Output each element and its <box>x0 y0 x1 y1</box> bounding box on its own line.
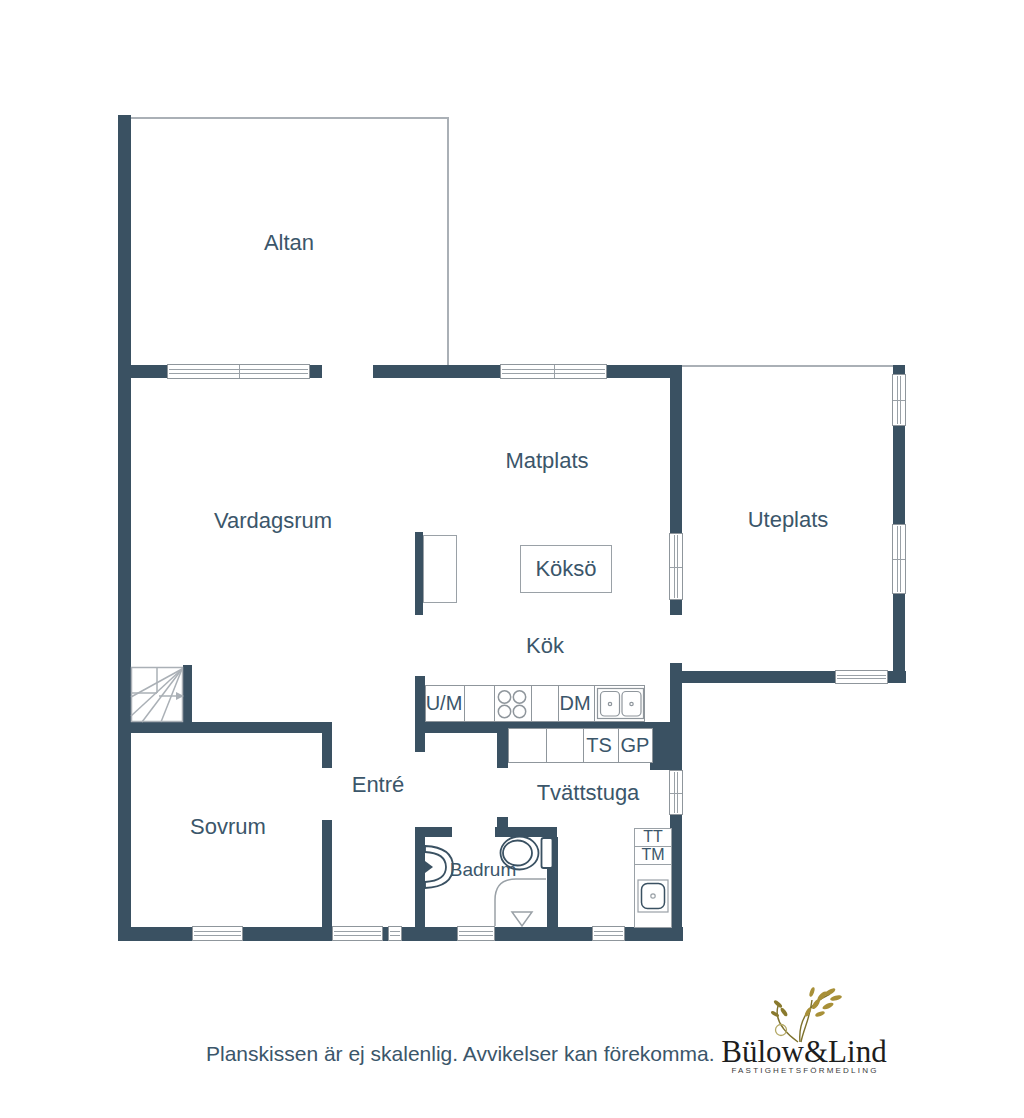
room-label-tvattstuga: Tvättstuga <box>537 782 640 804</box>
wall-matplats-top-left <box>373 365 500 378</box>
wall-kitchen-block-right <box>650 722 682 770</box>
room-label-vardagsrum: Vardagsrum <box>214 510 332 532</box>
appliance-label-tt: TT <box>643 829 663 845</box>
brand-subtitle: FASTIGHETSFÖRMEDLING <box>731 1066 878 1075</box>
window-uteplats-right-2 <box>892 524 906 594</box>
wall-matplats-uteplats-upper <box>670 365 682 533</box>
wall-bottom-5 <box>495 927 592 941</box>
wall-bottom-1 <box>118 927 192 941</box>
kitchen-tall-cabinet-back <box>415 532 423 615</box>
wall-bottom-6 <box>625 927 683 941</box>
window-entre-small <box>388 926 402 941</box>
kitchen-tall-cabinet <box>423 535 457 603</box>
logo-plant-leaves <box>804 987 843 1018</box>
wall-altan-bottom-left <box>118 365 167 378</box>
wall-uteplats-bottom-left <box>682 671 835 683</box>
uteplats-top-line <box>682 365 893 367</box>
wall-stairs-right <box>183 665 192 723</box>
altan-right-line <box>447 117 449 367</box>
wall-altan-bottom-right <box>310 365 322 378</box>
floor-plan-page: Altan Vardagsrum Matplats Uteplats Köksö… <box>0 0 1024 1118</box>
room-label-kokso: Köksö <box>535 558 596 580</box>
wall-exterior-left <box>118 115 131 941</box>
room-label-badrum: Badrum <box>450 860 517 879</box>
wall-uteplats-right-top-stub <box>893 365 905 374</box>
appliance-label-um: U/M <box>426 693 463 713</box>
wall-bottom-2 <box>243 927 332 941</box>
window-altan-door <box>167 364 310 379</box>
wall-matplats-uteplats-stub <box>670 600 682 615</box>
wall-badrum-right <box>547 837 558 927</box>
room-label-sovrum: Sovrum <box>190 816 266 838</box>
stairs-icon <box>131 667 184 722</box>
room-label-matplats: Matplats <box>505 450 588 472</box>
window-tvattstuga-right <box>669 770 683 815</box>
wall-sovrum-top <box>118 722 330 733</box>
window-matplats-top <box>500 364 607 379</box>
room-label-entre: Entré <box>352 774 405 796</box>
altan-top-line <box>131 117 449 119</box>
window-matplats-uteplats <box>669 533 683 600</box>
wall-bottom-4 <box>402 927 457 941</box>
wall-badrum-top-stub <box>497 817 508 827</box>
shower-icon <box>495 879 546 926</box>
wall-badrum-top-right <box>495 827 557 837</box>
window-tvattstuga-bottom <box>592 926 625 941</box>
room-label-kok: Kök <box>526 635 564 657</box>
wall-entre-tvattstuga <box>497 722 508 768</box>
window-uteplats-right-1 <box>892 374 906 426</box>
appliance-label-tm: TM <box>641 847 664 863</box>
appliance-label-ts: TS <box>586 735 612 755</box>
appliance-label-dm: DM <box>559 693 590 713</box>
window-entre-bottom <box>332 926 383 941</box>
disclaimer-text: Planskissen är ej skalenlig. Avvikelser … <box>206 1042 715 1066</box>
wall-sovrum-right-lower <box>322 820 332 927</box>
room-label-altan: Altan <box>264 232 314 254</box>
window-sovrum-bottom <box>192 926 243 941</box>
wall-uteplats-right-mid <box>893 426 905 524</box>
window-badrum-bottom <box>457 926 495 941</box>
fixtures-layer <box>0 0 1024 1118</box>
wall-uteplats-right-bottom <box>893 594 905 683</box>
window-uteplats-bottom <box>835 670 888 684</box>
wall-kitchen-counter-end <box>415 676 425 752</box>
room-label-uteplats: Uteplats <box>748 509 829 531</box>
wall-sovrum-right-upper <box>322 722 332 768</box>
wall-badrum-left <box>415 827 425 927</box>
appliance-label-gp: GP <box>621 735 650 755</box>
